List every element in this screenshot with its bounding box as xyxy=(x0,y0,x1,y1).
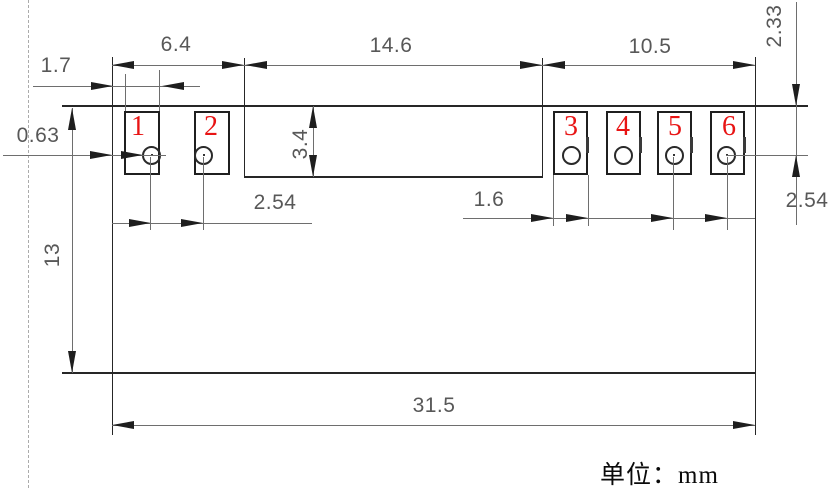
arrowhead xyxy=(162,82,184,90)
pad-edge-mark xyxy=(690,137,693,153)
pad-number-3: 3 xyxy=(558,112,584,142)
arrowhead xyxy=(68,351,76,373)
extension-line xyxy=(588,175,589,226)
dim-label-middle-section: 14.6 xyxy=(351,34,431,58)
pad-number-4: 4 xyxy=(610,112,636,142)
dim-label-left-section: 6.4 xyxy=(136,33,216,57)
dim-label-right-pitch: 2.54 xyxy=(767,189,836,213)
dim-line-top-widths xyxy=(112,65,755,66)
pad-edge-mark xyxy=(586,137,589,153)
arrowhead xyxy=(121,151,143,159)
hole-centerline xyxy=(673,157,674,230)
hole-3 xyxy=(562,146,581,165)
hole-centerline xyxy=(150,157,151,230)
arrowhead xyxy=(792,155,800,177)
arrowhead xyxy=(651,214,673,222)
board-right-edge xyxy=(755,57,756,435)
body-left-edge xyxy=(244,58,245,177)
body-right-edge xyxy=(542,58,543,177)
board-left-edge xyxy=(112,57,113,435)
extension-line xyxy=(159,70,160,111)
arrowhead xyxy=(181,219,203,227)
dim-label-right-section: 10.5 xyxy=(610,35,690,59)
arrowhead xyxy=(705,214,727,222)
dim-label-edge-gap: 0.63 xyxy=(0,124,78,148)
pad-edge-mark xyxy=(639,137,642,153)
hole-centerline xyxy=(727,157,728,230)
arrowhead xyxy=(531,214,553,222)
arrowhead xyxy=(112,61,134,69)
hole-4 xyxy=(614,146,633,165)
unit-note: 单位：mm xyxy=(600,455,719,490)
arrowhead xyxy=(520,61,542,69)
dim-label-left-pitch: 2.54 xyxy=(235,191,315,215)
dim-label-body-height: 3.4 xyxy=(289,104,313,184)
dim-label-left-pad-width: 1.7 xyxy=(16,54,96,78)
arrowhead xyxy=(733,421,755,429)
arrowhead xyxy=(222,61,244,69)
pad-edge-mark xyxy=(743,137,746,153)
dim-line-board-width xyxy=(112,425,755,426)
hole-center-mark xyxy=(203,154,205,156)
pad-number-5: 5 xyxy=(662,112,688,142)
arrowhead xyxy=(90,151,112,159)
arrowhead xyxy=(543,61,565,69)
arrowhead xyxy=(733,61,755,69)
dim-label-right-pad-width: 1.6 xyxy=(449,188,529,212)
extension-line xyxy=(553,175,554,226)
arrowhead xyxy=(566,214,588,222)
arrowhead xyxy=(129,219,151,227)
technical-drawing-canvas: 1 2 3 4 5 6 xyxy=(0,0,836,490)
arrowhead xyxy=(792,84,800,106)
dim-label-board-height: 13 xyxy=(41,215,65,295)
hole-center-mark xyxy=(673,154,675,156)
pad-number-6: 6 xyxy=(716,112,742,142)
extension-line xyxy=(125,74,126,111)
pad-number-1: 1 xyxy=(125,112,151,142)
arrowhead xyxy=(112,421,134,429)
arrowhead xyxy=(91,82,113,90)
dim-label-board-width: 31.5 xyxy=(394,394,474,418)
board-top-edge xyxy=(62,105,808,107)
pad-number-2: 2 xyxy=(198,112,224,142)
board-bottom-edge xyxy=(62,372,756,374)
dim-label-hole-offset: 2.33 xyxy=(763,0,787,66)
arrowhead xyxy=(245,61,267,69)
hole-centerline xyxy=(203,157,204,230)
